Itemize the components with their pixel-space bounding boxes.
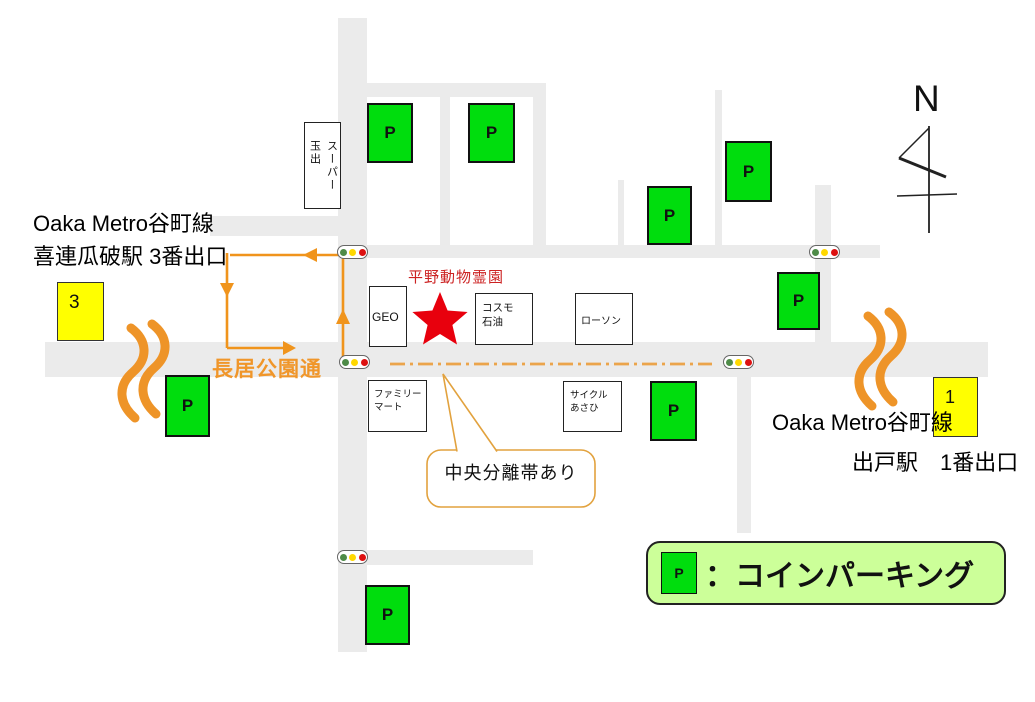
exit-number: 1 — [945, 387, 955, 408]
legend-parking-icon: P — [661, 552, 697, 594]
parking-symbol: P — [743, 162, 754, 182]
green-light — [342, 359, 349, 366]
parking-box-8: P — [165, 375, 210, 437]
parking-symbol: P — [384, 123, 395, 143]
red-light — [361, 359, 368, 366]
landmark-label: GEO — [372, 310, 399, 324]
callout-text: 中央分離帯あり — [427, 459, 595, 485]
compass-north-label: N — [913, 78, 940, 120]
red-light — [359, 554, 366, 561]
legend-text: ：コインパーキング — [705, 551, 974, 595]
landmark-super-tamade: スーパー玉出 — [304, 122, 341, 209]
landmark-lawson: ローソン — [575, 293, 633, 345]
station-left-label: Oaka Metro谷町線 喜連瓜破駅 3番出口 — [33, 207, 227, 273]
route-arrow-down — [220, 283, 234, 297]
parking-symbol: P — [668, 401, 679, 421]
parking-box-5: P — [777, 272, 820, 330]
yellow-light — [349, 554, 356, 561]
compass-arrow-icon — [897, 126, 957, 233]
traffic-light-icon — [337, 550, 368, 564]
traffic-light-icon — [337, 245, 368, 259]
green-light — [340, 249, 347, 256]
parking-symbol: P — [182, 396, 193, 416]
landmark-cycle-asahi: サイクル あさひ — [563, 381, 622, 432]
parking-symbol: P — [382, 605, 393, 625]
road-name-label: 長居公園通 — [212, 353, 322, 383]
landmark-geo: GEO — [369, 286, 407, 347]
legend-parking-symbol: P — [674, 565, 683, 581]
route-arrow-up — [336, 309, 350, 324]
yellow-light — [349, 249, 356, 256]
station-right-exit-name: 出戸駅 1番出口 — [852, 446, 1018, 479]
exit-box-3: 3 — [57, 282, 104, 341]
green-light — [340, 554, 347, 561]
parking-symbol: P — [486, 123, 497, 143]
yellow-light — [821, 249, 828, 256]
destination-star-icon — [412, 292, 467, 345]
landmark-familymart: ファミリー マート — [368, 380, 427, 432]
landmark-label: ファミリー マート — [374, 389, 422, 413]
landmark-label: ローソン — [581, 312, 621, 327]
traffic-light-icon — [809, 245, 840, 259]
green-light — [726, 359, 733, 366]
station-right-line-name: Oaka Metro谷町線 — [772, 406, 953, 439]
landmark-label: スーパー玉出 — [306, 140, 340, 192]
traffic-light-icon — [723, 355, 754, 369]
legend: P ：コインパーキング — [646, 541, 1006, 605]
yellow-light — [351, 359, 358, 366]
parking-box-4: P — [725, 141, 772, 202]
route-arrow-left — [303, 248, 317, 262]
red-light — [359, 249, 366, 256]
parking-box-7: P — [365, 585, 410, 645]
access-map: P P P P P P P P スーパー玉出 GEO コスモ 石油 ローソン フ… — [0, 0, 1035, 702]
traffic-light-icon — [339, 355, 370, 369]
green-light — [812, 249, 819, 256]
exit-number: 3 — [69, 292, 80, 314]
rail-squiggles-left — [122, 324, 165, 418]
landmark-label: サイクル あさひ — [570, 390, 608, 414]
parking-box-1: P — [367, 103, 413, 163]
station-exit-name: 喜連瓜破駅 3番出口 — [33, 240, 227, 273]
landmark-label: コスモ 石油 — [482, 302, 514, 328]
parking-symbol: P — [664, 206, 675, 226]
yellow-light — [735, 359, 742, 366]
destination-label: 平野動物霊園 — [408, 266, 504, 287]
station-line-name: Oaka Metro谷町線 — [33, 207, 227, 240]
red-light — [831, 249, 838, 256]
red-light — [745, 359, 752, 366]
rail-squiggles-right — [859, 312, 902, 406]
parking-box-3: P — [647, 186, 692, 245]
parking-box-2: P — [468, 103, 515, 163]
parking-symbol: P — [793, 291, 804, 311]
landmark-cosmo-oil: コスモ 石油 — [475, 293, 533, 345]
parking-box-6: P — [650, 381, 697, 441]
